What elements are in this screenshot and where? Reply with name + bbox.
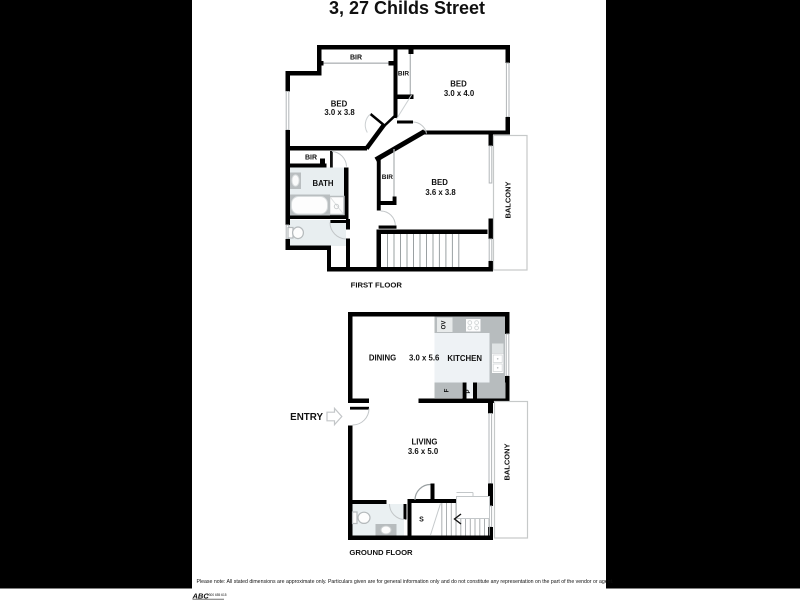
svg-text:KITCHEN: KITCHEN [447,354,482,363]
svg-text:F: F [445,388,451,392]
svg-text:FIRST FLOOR: FIRST FLOOR [351,281,403,290]
svg-text:S: S [419,517,424,524]
svg-text:BATH: BATH [312,179,333,188]
svg-text:3.0 x 3.8: 3.0 x 3.8 [324,108,355,117]
svg-text:3.6 x 3.8: 3.6 x 3.8 [425,188,456,197]
svg-text:1300 655 615: 1300 655 615 [207,593,227,597]
svg-text:BED: BED [450,79,467,88]
svg-text:BALCONY: BALCONY [503,443,512,480]
svg-text:BIR: BIR [382,174,394,181]
svg-text:3.0 x 5.6: 3.0 x 5.6 [409,354,440,363]
svg-text:Please note: All stated dimens: Please note: All stated dimensions are a… [197,579,614,585]
svg-text:BIR: BIR [398,70,410,77]
svg-text:DINING: DINING [369,354,396,363]
svg-text:BED: BED [431,178,448,187]
svg-text:3.6 x 5.0: 3.6 x 5.0 [408,447,439,456]
svg-text:GROUND FLOOR: GROUND FLOOR [349,548,413,557]
svg-text:P: P [466,389,472,393]
svg-text:ENTRY: ENTRY [290,412,323,423]
svg-text:OV: OV [442,321,448,330]
svg-text:BIR: BIR [350,54,362,61]
svg-text:LIVING: LIVING [412,438,438,447]
svg-text:3.0 x 4.0: 3.0 x 4.0 [444,89,475,98]
svg-text:BALCONY: BALCONY [504,181,513,218]
svg-text:3, 27 Childs Street: 3, 27 Childs Street [329,0,485,18]
svg-text:BIR: BIR [305,154,317,161]
